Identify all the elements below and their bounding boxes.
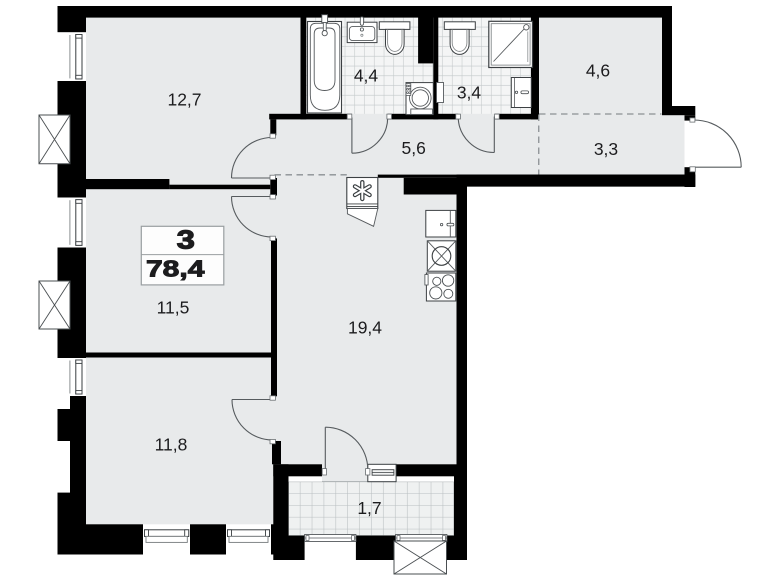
svg-text:4,6: 4,6 [586, 61, 610, 81]
svg-text:1,7: 1,7 [357, 498, 381, 518]
svg-text:3: 3 [177, 226, 195, 255]
svg-text:11,8: 11,8 [155, 435, 188, 455]
svg-text:3,4: 3,4 [457, 83, 482, 103]
svg-text:4,4: 4,4 [354, 66, 379, 86]
svg-text:19,4: 19,4 [348, 318, 382, 338]
svg-text:5,6: 5,6 [402, 138, 426, 158]
svg-text:11,5: 11,5 [157, 298, 190, 318]
svg-text:12,7: 12,7 [167, 90, 201, 110]
svg-text:78,4: 78,4 [146, 256, 205, 282]
svg-text:3,3: 3,3 [594, 139, 618, 159]
